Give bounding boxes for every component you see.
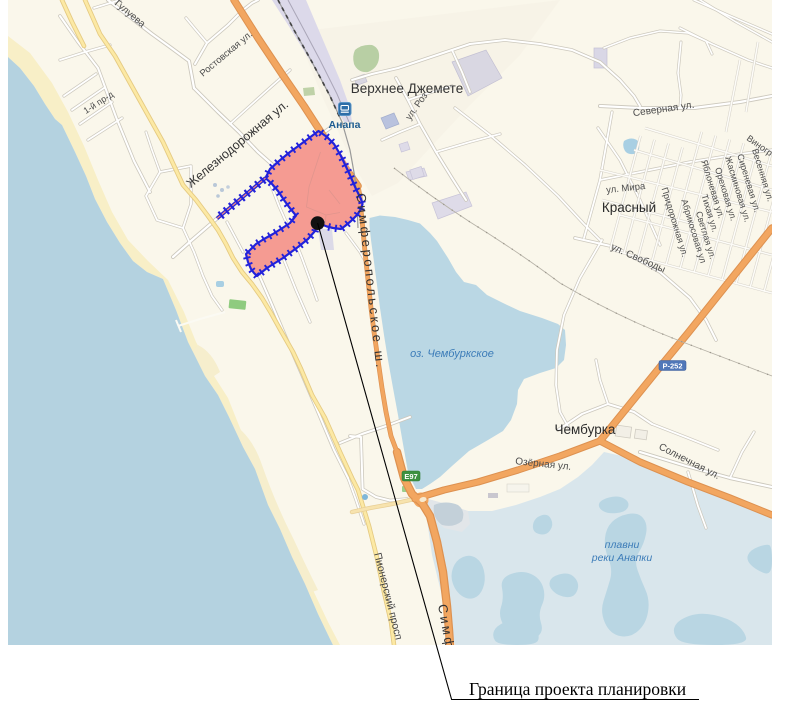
- svg-text:плавни: плавни: [605, 539, 640, 551]
- svg-text:Граница проекта планировки: Граница проекта планировки: [469, 679, 686, 699]
- svg-text:E97: E97: [404, 472, 417, 481]
- svg-text:Верхнее Джемете: Верхнее Джемете: [351, 81, 463, 96]
- svg-text:Анапа: Анапа: [329, 119, 361, 131]
- svg-text:реки Анапки: реки Анапки: [591, 552, 653, 564]
- svg-text:Р-252: Р-252: [662, 361, 682, 370]
- svg-text:Красный: Красный: [602, 200, 656, 215]
- svg-text:оз. Чембуркское: оз. Чембуркское: [410, 348, 494, 360]
- svg-text:Чембурка: Чембурка: [555, 422, 616, 437]
